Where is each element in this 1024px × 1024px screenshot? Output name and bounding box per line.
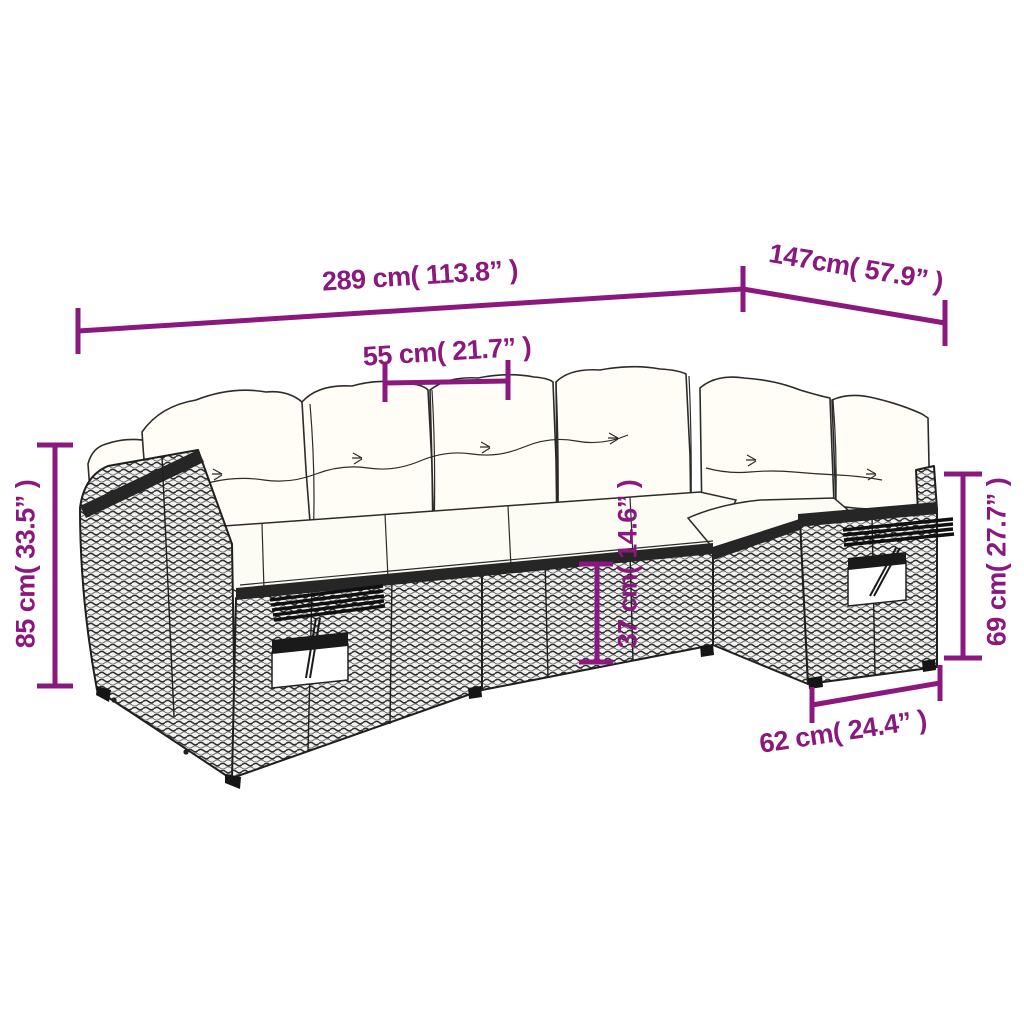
dim-arm-back-height xyxy=(944,474,982,658)
dim-label-arm-back-height: 69 cm( 27.7” ) xyxy=(984,478,1011,647)
dimension-diagram: 289 cm( 113.8” ) 147cm( 57.9” ) 55 cm( 2… xyxy=(0,0,1024,1024)
dim-label-seat-height: 37 cm( 14.6” ) xyxy=(615,480,642,649)
dim-right-depth xyxy=(743,289,945,346)
back-cushion xyxy=(832,395,930,510)
sofa-line-art xyxy=(0,0,1024,1024)
dim-back-height xyxy=(37,445,73,686)
dim-label-back-height: 85 cm( 33.5” ) xyxy=(13,480,40,649)
